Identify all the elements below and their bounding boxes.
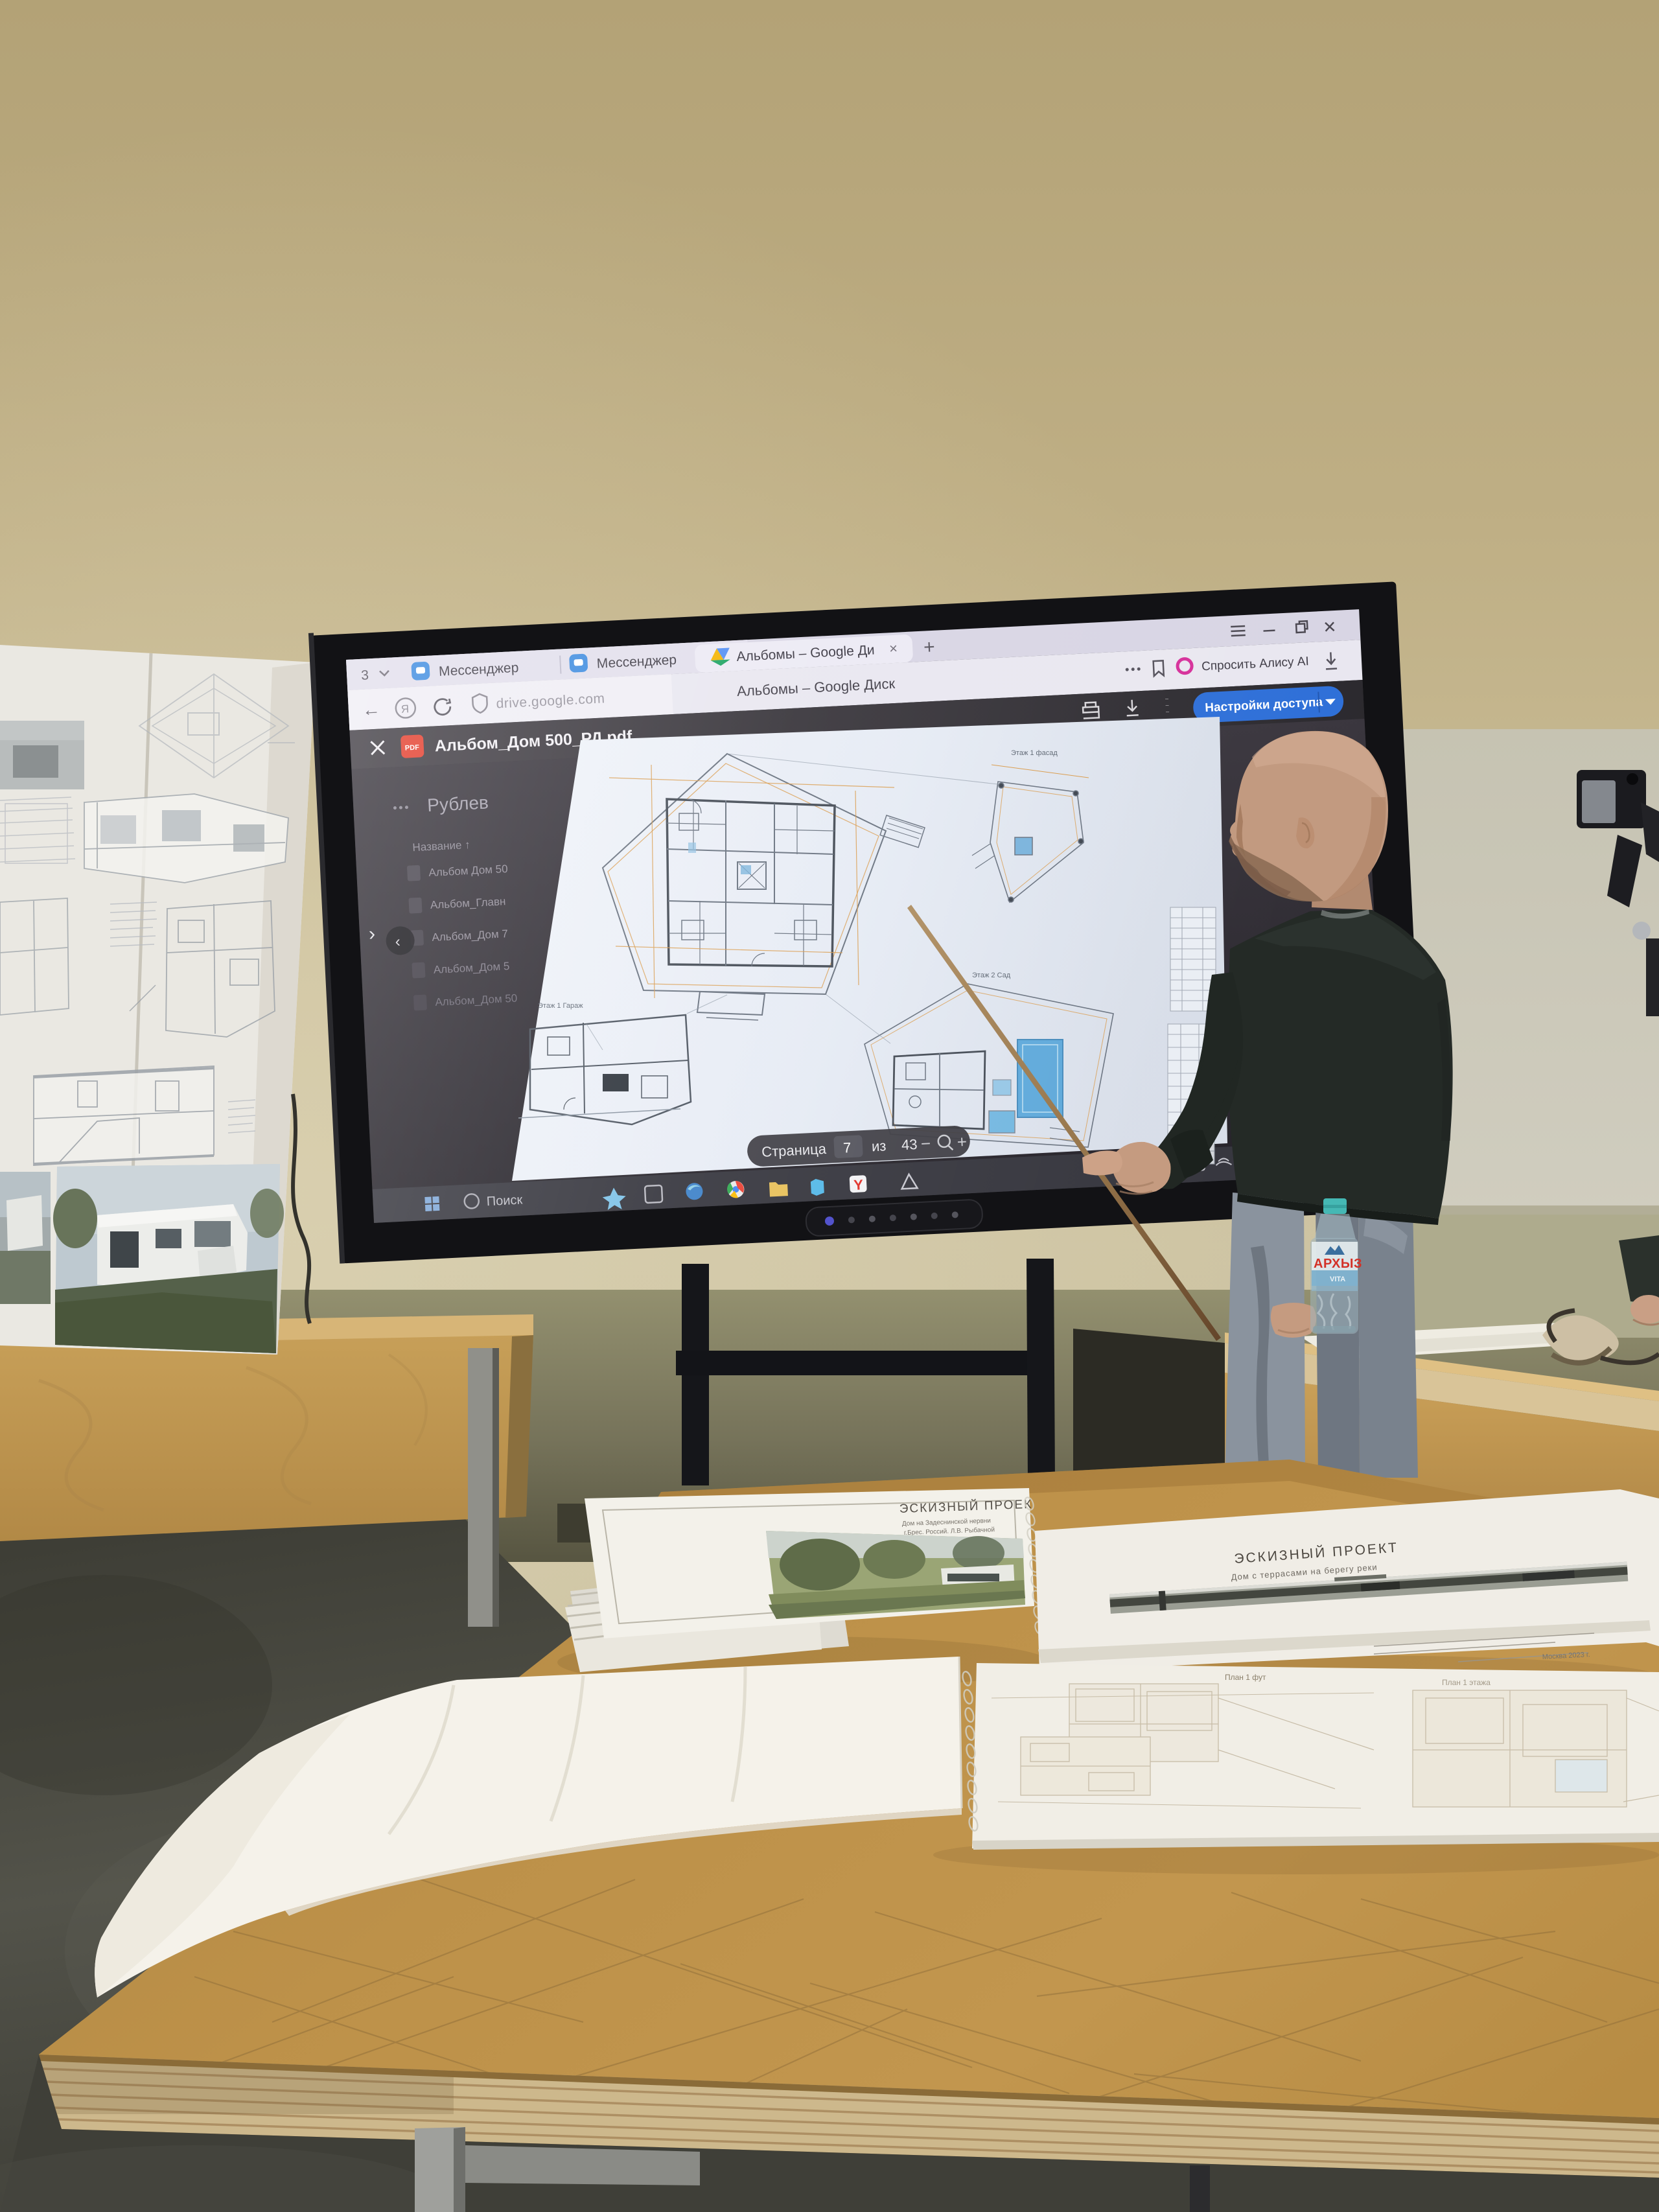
- svg-text:План 1 фут: План 1 фут: [1225, 1673, 1266, 1682]
- svg-text:План 1 этажа: План 1 этажа: [1442, 1678, 1491, 1687]
- svg-text:VITA: VITA: [1330, 1275, 1345, 1283]
- svg-text:АРХЫЗ: АРХЫЗ: [1314, 1257, 1362, 1271]
